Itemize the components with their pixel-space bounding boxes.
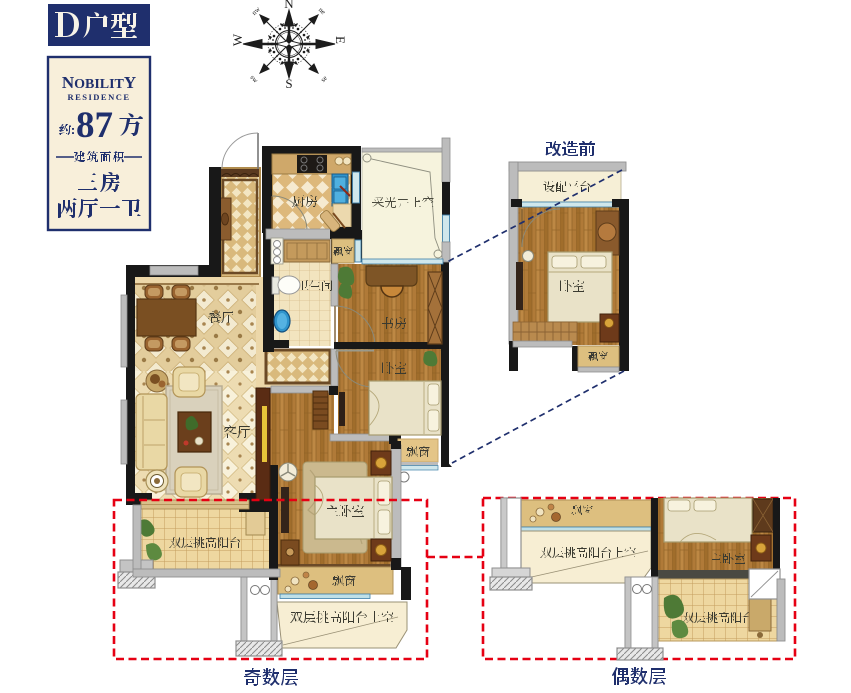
svg-text:W: W [230,33,245,46]
svg-text:RESIDENCE: RESIDENCE [67,92,130,102]
svg-text:S: S [285,76,292,91]
svg-text:se: se [319,74,329,84]
svg-text:N: N [284,0,294,11]
svg-text:87: 87 [76,105,113,146]
svg-text:sw: sw [248,73,260,85]
svg-text:E: E [333,36,348,44]
